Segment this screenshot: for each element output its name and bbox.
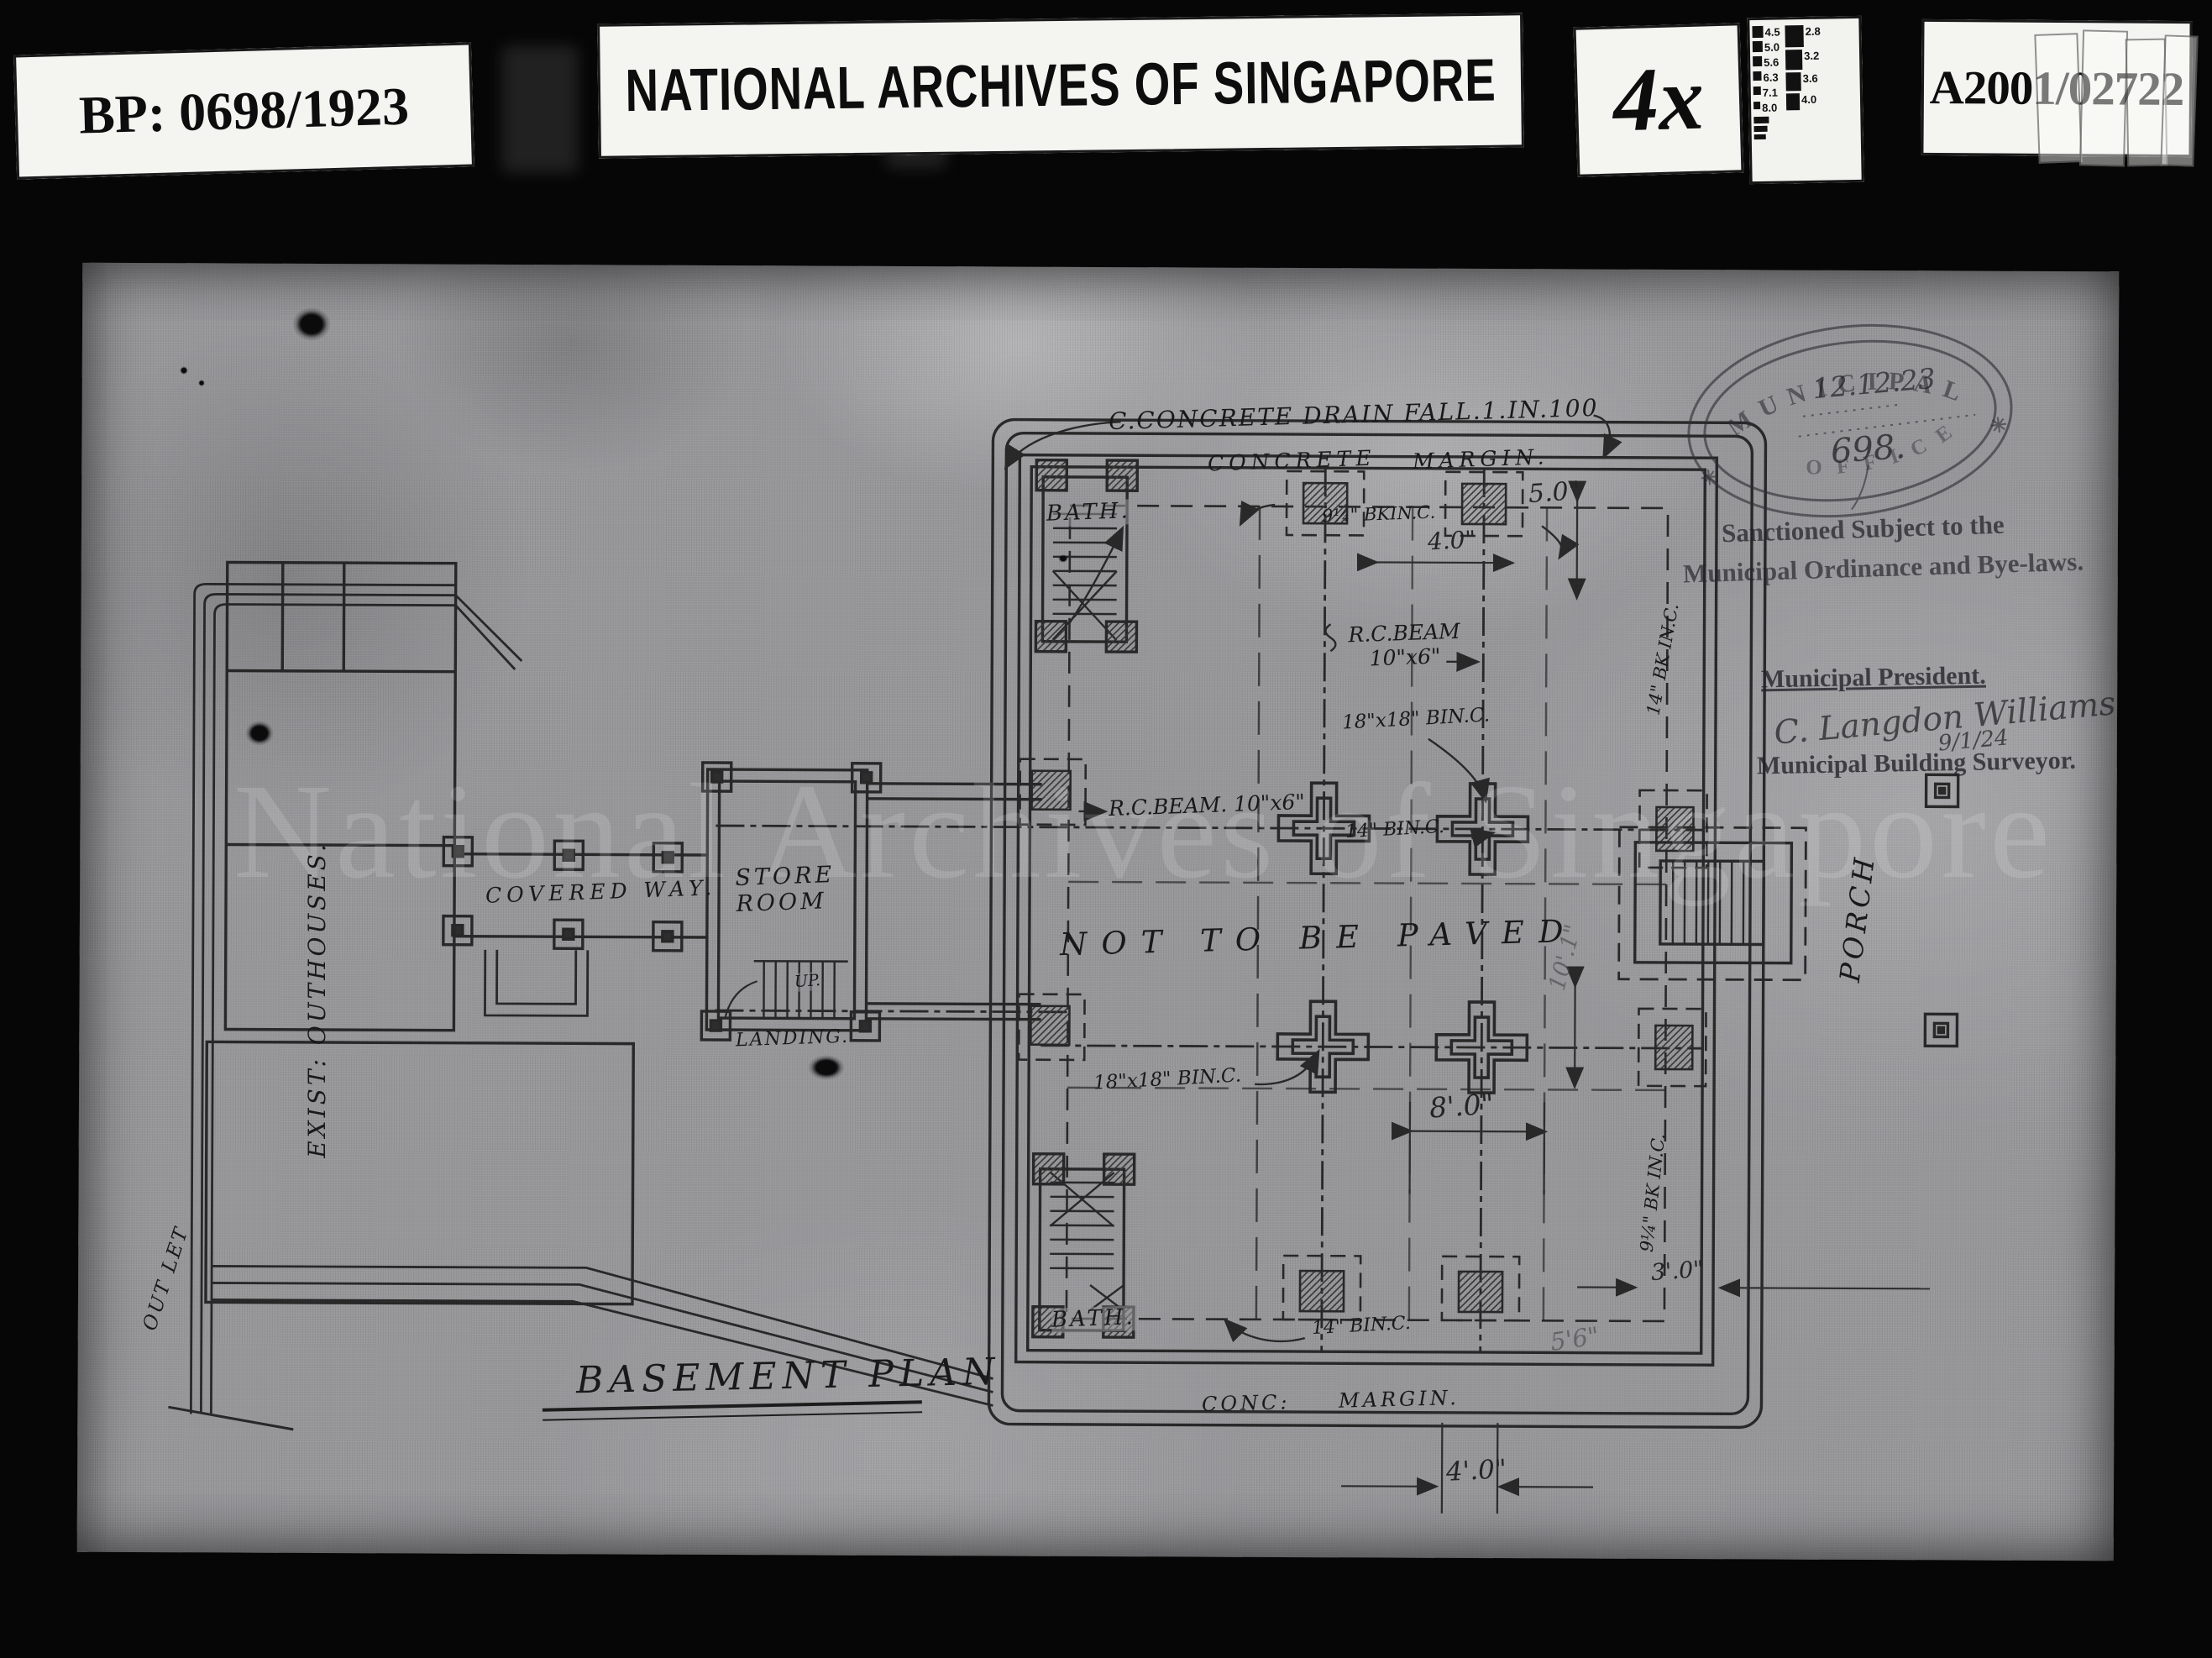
ink-speck — [198, 380, 205, 386]
archive-name-text: NATIONAL ARCHIVES OF SINGAPORE — [625, 45, 1497, 125]
resolution-test-chart: 4.5 5.0 5.6 6.3 7.1 8.0 2.8 3.2 3.6 4.0 — [1747, 16, 1863, 184]
chart-value: 4.0 — [1801, 93, 1816, 106]
chart-left-column: 4.5 5.0 5.6 6.3 7.1 8.0 — [1752, 26, 1782, 176]
margin-label: MARGIN. — [1413, 445, 1549, 474]
chart-value: 5.0 — [1764, 41, 1780, 54]
archive-name-label: NATIONAL ARCHIVES OF SINGAPORE — [597, 13, 1524, 158]
dim-5-0: 5.0" — [1528, 477, 1581, 510]
chart-value: 8.0 — [1762, 102, 1777, 114]
dim-4-0-bottom: 4'.0" — [1445, 1455, 1507, 1487]
bp-number-label: BP: 0698/1923 — [13, 42, 474, 179]
oval-stamp-star-right: ✳ — [1989, 414, 2009, 438]
plan-title: BASEMENT PLAN — [576, 1351, 1001, 1403]
magnification-label: 4x — [1574, 23, 1744, 176]
oval-stamp-star-left: ✳ — [1700, 467, 1719, 491]
up-label: UP. — [794, 972, 820, 992]
ink-speck — [180, 366, 188, 375]
dim-4-0: 4.0" — [1427, 527, 1476, 556]
chart-value: 4.5 — [1764, 26, 1780, 39]
dim-3-0: 3'.0" — [1650, 1257, 1705, 1286]
chart-value: 5.6 — [1764, 56, 1779, 69]
president-stamp: Municipal President. — [1761, 662, 1986, 695]
tape-strip — [2034, 33, 2082, 164]
chart-value: 7.1 — [1763, 87, 1778, 99]
dim-8-0: 8'.0" — [1428, 1088, 1495, 1124]
tape-strip — [2160, 34, 2198, 166]
chart-value: 6.3 — [1763, 71, 1778, 84]
chart-right-column: 2.8 3.2 3.6 4.0 — [1785, 25, 1823, 176]
outhouses-label: EXIST: OUTHOUSES. — [304, 841, 331, 1158]
chart-value: 3.6 — [1803, 72, 1818, 85]
surveyor-stamp: Municipal Building Surveyor. — [1757, 747, 2076, 781]
rc-beam-note-upper: R.C.BEAM 10"x6" — [1348, 620, 1461, 672]
bp-number-text: BP: 0698/1923 — [78, 76, 410, 147]
chart-value: 3.2 — [1804, 50, 1819, 62]
ink-blot — [808, 1055, 845, 1080]
ink-speck — [1058, 554, 1068, 563]
tape-strip — [2079, 29, 2128, 166]
ink-blot — [292, 307, 331, 341]
bath-label-bottom: BATH. — [1051, 1305, 1136, 1333]
chart-value: 2.8 — [1806, 25, 1821, 38]
brick-note-top: 9¼" BKIN.C. — [1322, 502, 1436, 527]
store-room-label: STORE ROOM — [735, 862, 836, 917]
stamp-handwritten-number: 698. — [1830, 428, 1907, 471]
landing-label: LANDING. — [736, 1026, 850, 1052]
ink-blot — [245, 721, 274, 746]
magnification-text: 4x — [1612, 47, 1705, 154]
bath-label-top: BATH. — [1046, 499, 1131, 527]
